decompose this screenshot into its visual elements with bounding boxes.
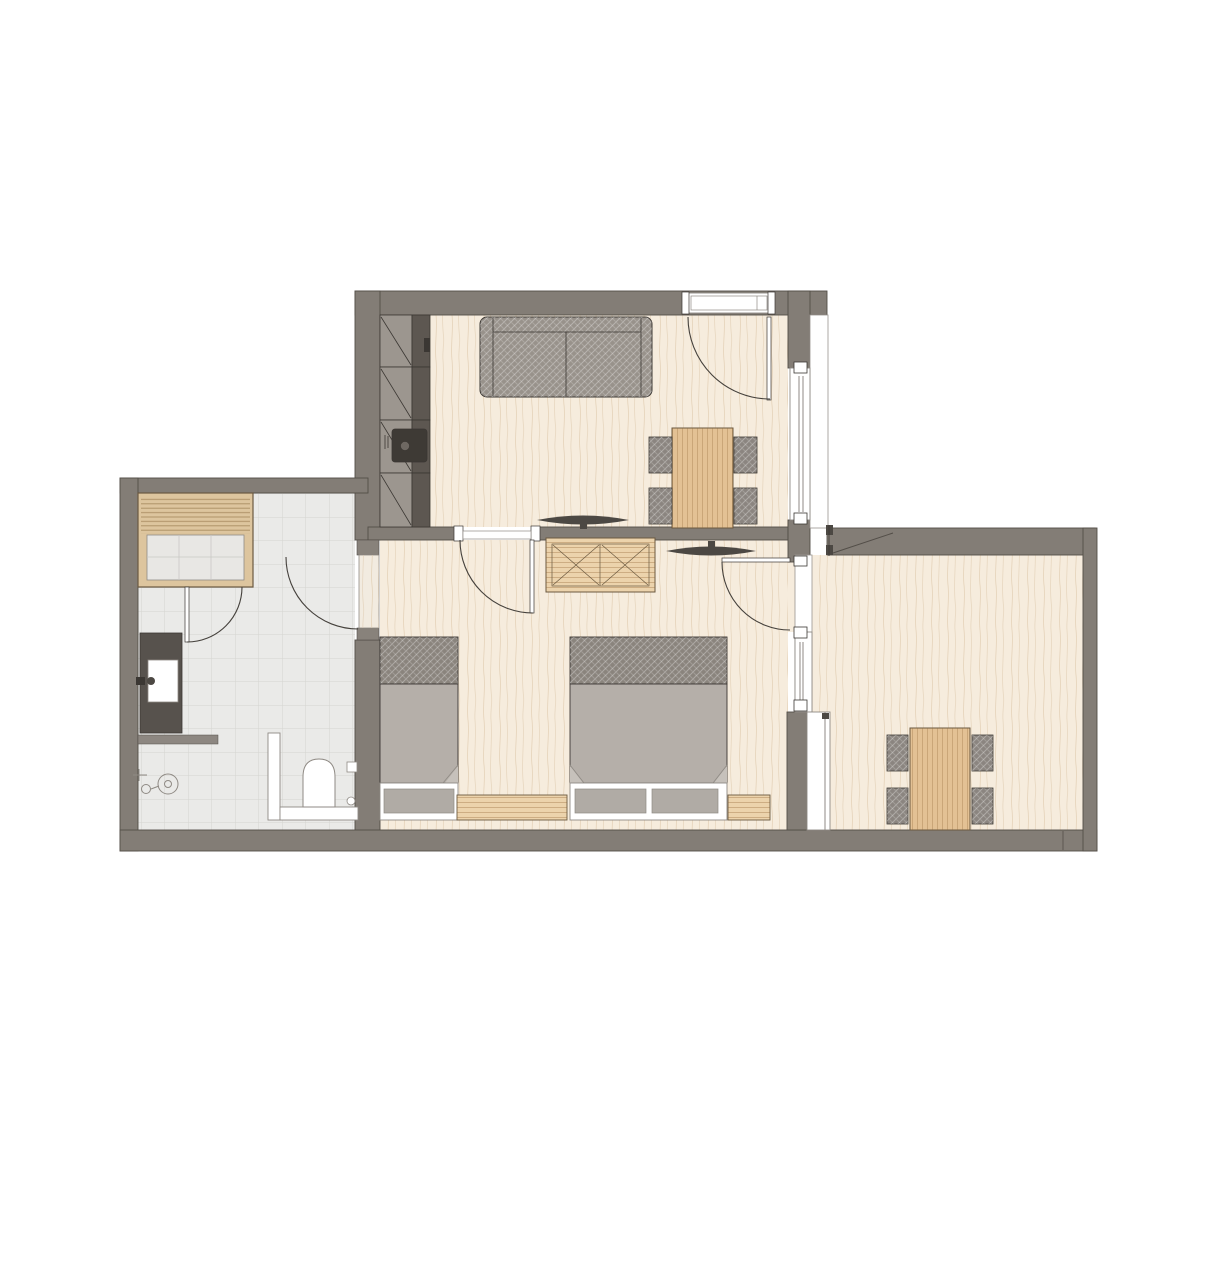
entry-jamb-left [682,292,689,314]
kitchen-cabinet-handle [424,338,430,352]
vanity-faucet-base [136,677,145,685]
wall-left-lower [355,640,380,831]
annex-door-leaf [722,558,790,562]
living-window-frame-bottom [794,513,807,524]
double-bed-pillow-texture [570,637,727,684]
bathroom-door-frame-bottom [357,628,379,640]
bedroom-door-jamb-left [454,526,463,541]
wall-left-upper [355,291,380,540]
sauna-door-leaf [185,587,189,642]
wall-right-upper [788,291,810,368]
shower-partition-panel [268,733,280,820]
floor-plan-page [0,0,1206,1269]
toilet-bowl [303,759,335,807]
bedroom-door-leaf [530,540,534,613]
bathroom-door-leaf-texture [359,555,379,628]
dining-table-texture [672,428,733,528]
entry-jamb-right [768,292,775,314]
single-bed-mattress [380,684,458,783]
single-bed-pillow-texture [380,637,458,684]
toilet-ledge [280,807,358,820]
annex-mullion-tick-1 [826,525,833,535]
living-window-frame-top [794,362,807,373]
wall-bathroom-left [120,478,138,851]
wall-bottom [120,830,1097,851]
tv-living-room-stand [580,523,587,529]
annex-chair-bottom-left-texture [887,788,908,824]
dining-chair-top-right-texture [734,437,757,473]
kitchen-cabinet-2-side [412,367,430,420]
kitchen-cabinet-4-side [412,473,430,527]
annex-table-texture [910,728,970,830]
living-window [790,368,810,520]
annex-chair-top-left-texture [887,735,908,771]
double-bed-footbox-blanket-right [652,789,718,813]
bathroom-door-frame-top [357,540,379,555]
double-bed-duvet [570,684,727,783]
dining-chair-top-left-texture [649,437,672,473]
partition-window-frame-bottom [794,700,807,711]
dining-chair-bottom-left-texture [649,488,672,524]
single-bed-footbox-blanket [384,789,454,813]
wall-bathroom-top [120,478,368,493]
bathroom-shelf [138,735,218,744]
sauna-bench [147,535,244,580]
double-bed-bench-texture [728,795,770,820]
kitchen-sink-drain [401,442,410,451]
annex-chair-bottom-right-texture [972,788,993,824]
annex-mullion-tick-2 [826,545,833,555]
entry-door-leaf [767,317,771,400]
dining-chair-bottom-right-texture [734,488,757,524]
annex-glass-panel [807,712,830,830]
exterior-face-strip [810,315,828,528]
partition-window-frame-top [794,627,807,638]
annex-glass-panel-tick [822,713,829,719]
toilet-flush-button [347,797,355,805]
wall-right-lower [787,712,807,830]
double-bed-footbox-blanket-left [575,789,646,813]
wardrobe-texture [546,538,655,592]
sauna-slats-texture [141,496,250,534]
bedroom-door-jamb-right [531,526,540,541]
wall-mid-left [368,527,455,540]
floor-plan-canvas [0,0,1206,1269]
tv-bedroom-stand [708,541,715,547]
toilet-paper-holder [347,762,357,772]
single-bed-bench-texture [457,795,567,820]
vanity-faucet [147,677,155,685]
bedroom-door-threshold [463,531,531,539]
wall-annex-right [1083,528,1097,851]
partition-door-frame-mark [794,556,807,566]
annex-chair-top-right-texture [972,735,993,771]
